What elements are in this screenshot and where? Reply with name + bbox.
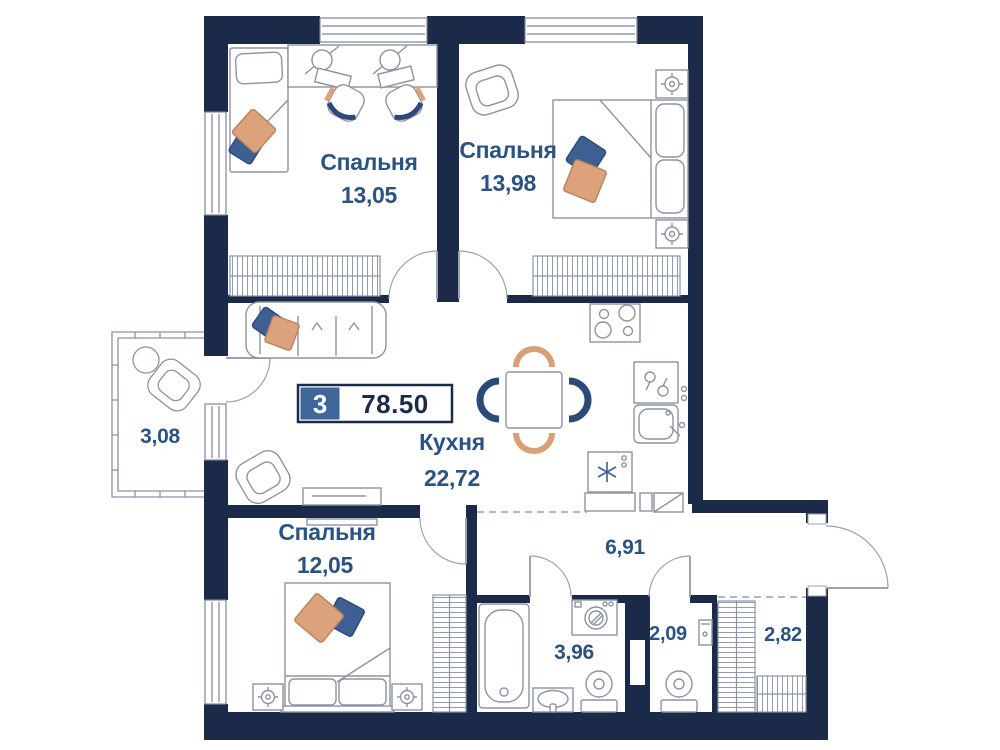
nightstand-icon [253,684,283,710]
window-living-left [205,404,226,460]
room-label-storage: 2,82 [764,624,802,646]
toilet-icon [581,671,617,712]
chair-orange-icon [516,349,552,367]
bed-pillow-icon [235,52,283,84]
chair-orange-icon [516,433,552,451]
balcony-table-icon [133,347,159,373]
bathroom-sink-icon [533,688,573,712]
window-bedroom1-left [205,112,226,215]
washing-machine-icon [572,600,617,635]
desk-icon [288,45,437,87]
kitchen-sink-icon [634,405,685,443]
svg-text:3,08: 3,08 [140,425,180,448]
wardrobe-bedroom2-icon [533,256,680,296]
svg-text:2,82: 2,82 [764,624,802,646]
bedroom3-furniture [253,583,422,712]
bathroom-furniture [479,600,617,712]
svg-text:Спальня: Спальня [459,137,556,163]
svg-text:Спальня: Спальня [320,149,417,175]
floor-plan-page: Спальня 13,05 Спальня 13,98 Кухня 22,72 … [0,0,1000,750]
door-bathroom [530,556,571,597]
armchair-icon [462,62,521,119]
nightstand-icon [392,684,422,710]
wardrobe-storage-icon [718,601,755,712]
total-area: 78.50 [361,389,429,419]
window-bedroom3-left [205,600,226,704]
shaft-vent [630,640,645,685]
wardrobe-bedroom1-icon [230,256,380,296]
chair-navy-icon [480,381,499,419]
room-label-bedroom1: Спальня 13,05 [320,149,417,208]
stove-icon [590,304,640,342]
rooms-count: 3 [313,389,327,419]
fridge-icon [588,452,632,492]
balcony [112,332,205,497]
armchair-icon [231,446,295,508]
door-wc [649,556,690,597]
floor-plan: Спальня 13,05 Спальня 13,98 Кухня 22,72 … [0,0,1000,750]
toilet-icon [661,671,697,712]
nightstand-icon [656,220,688,248]
nightstand-icon [656,70,688,98]
chair-navy-icon [569,381,588,419]
door-balcony [226,358,270,402]
svg-text:13,98: 13,98 [480,170,537,196]
door-bedroom1 [389,251,437,299]
kitchen-cabinets-icon [585,493,683,512]
door-bedroom3 [420,518,466,564]
room-label-bathroom: 3,96 [554,641,594,664]
bed-pillow-icon [339,679,386,705]
bed-pillow-icon [656,104,684,157]
wall-sink-icon [699,620,712,645]
dining-table-icon [480,349,588,451]
bar-counter-icon [634,362,687,403]
door-entrance [808,514,888,596]
window-bedroom1-top [320,18,427,42]
bed-pillow-icon [656,160,684,213]
headboard [281,706,394,712]
area-badge: 3 78.50 [298,385,452,422]
svg-text:6,91: 6,91 [605,536,645,559]
svg-text:13,05: 13,05 [341,182,398,208]
svg-text:12,05: 12,05 [297,552,354,578]
wardrobe-bedroom3-icon [433,595,466,712]
svg-text:Спальня: Спальня [278,519,375,545]
svg-text:22,72: 22,72 [424,465,480,491]
svg-text:Кухня: Кухня [419,429,485,455]
kitchen-furniture [480,304,687,512]
balcony-glazing-inner [118,338,204,491]
room-label-bedroom2: Спальня 13,98 [459,137,556,196]
room-label-kitchen: Кухня 22,72 [419,429,485,491]
room-label-balcony: 3,08 [140,425,180,448]
bed-pillow-icon [289,679,336,705]
svg-text:3,96: 3,96 [554,641,594,664]
room-label-bedroom3: Спальня 12,05 [278,519,375,578]
tv-stand-icon [303,488,381,505]
room-label-wc: 2,09 [649,623,687,645]
window-bedroom2-top [525,18,637,42]
wardrobe-storage-bottom-icon [757,676,806,712]
room-label-hallway: 6,91 [605,536,645,559]
bathtub-icon [479,604,529,708]
svg-text:2,09: 2,09 [649,623,687,645]
door-bedroom2 [459,251,507,299]
